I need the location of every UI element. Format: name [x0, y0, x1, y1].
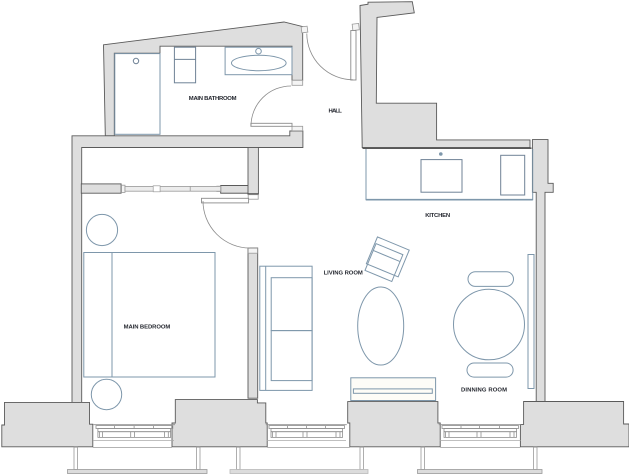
svg-text:MAIN BATHROOM: MAIN BATHROOM	[189, 96, 237, 102]
svg-text:LIVING ROOM: LIVING ROOM	[324, 271, 363, 277]
svg-text:DINNING ROOM: DINNING ROOM	[461, 388, 507, 394]
svg-text:KITCHEN: KITCHEN	[425, 213, 450, 219]
svg-text:MAIN BEDROOM: MAIN BEDROOM	[124, 324, 171, 330]
svg-text:HALL: HALL	[329, 108, 343, 114]
